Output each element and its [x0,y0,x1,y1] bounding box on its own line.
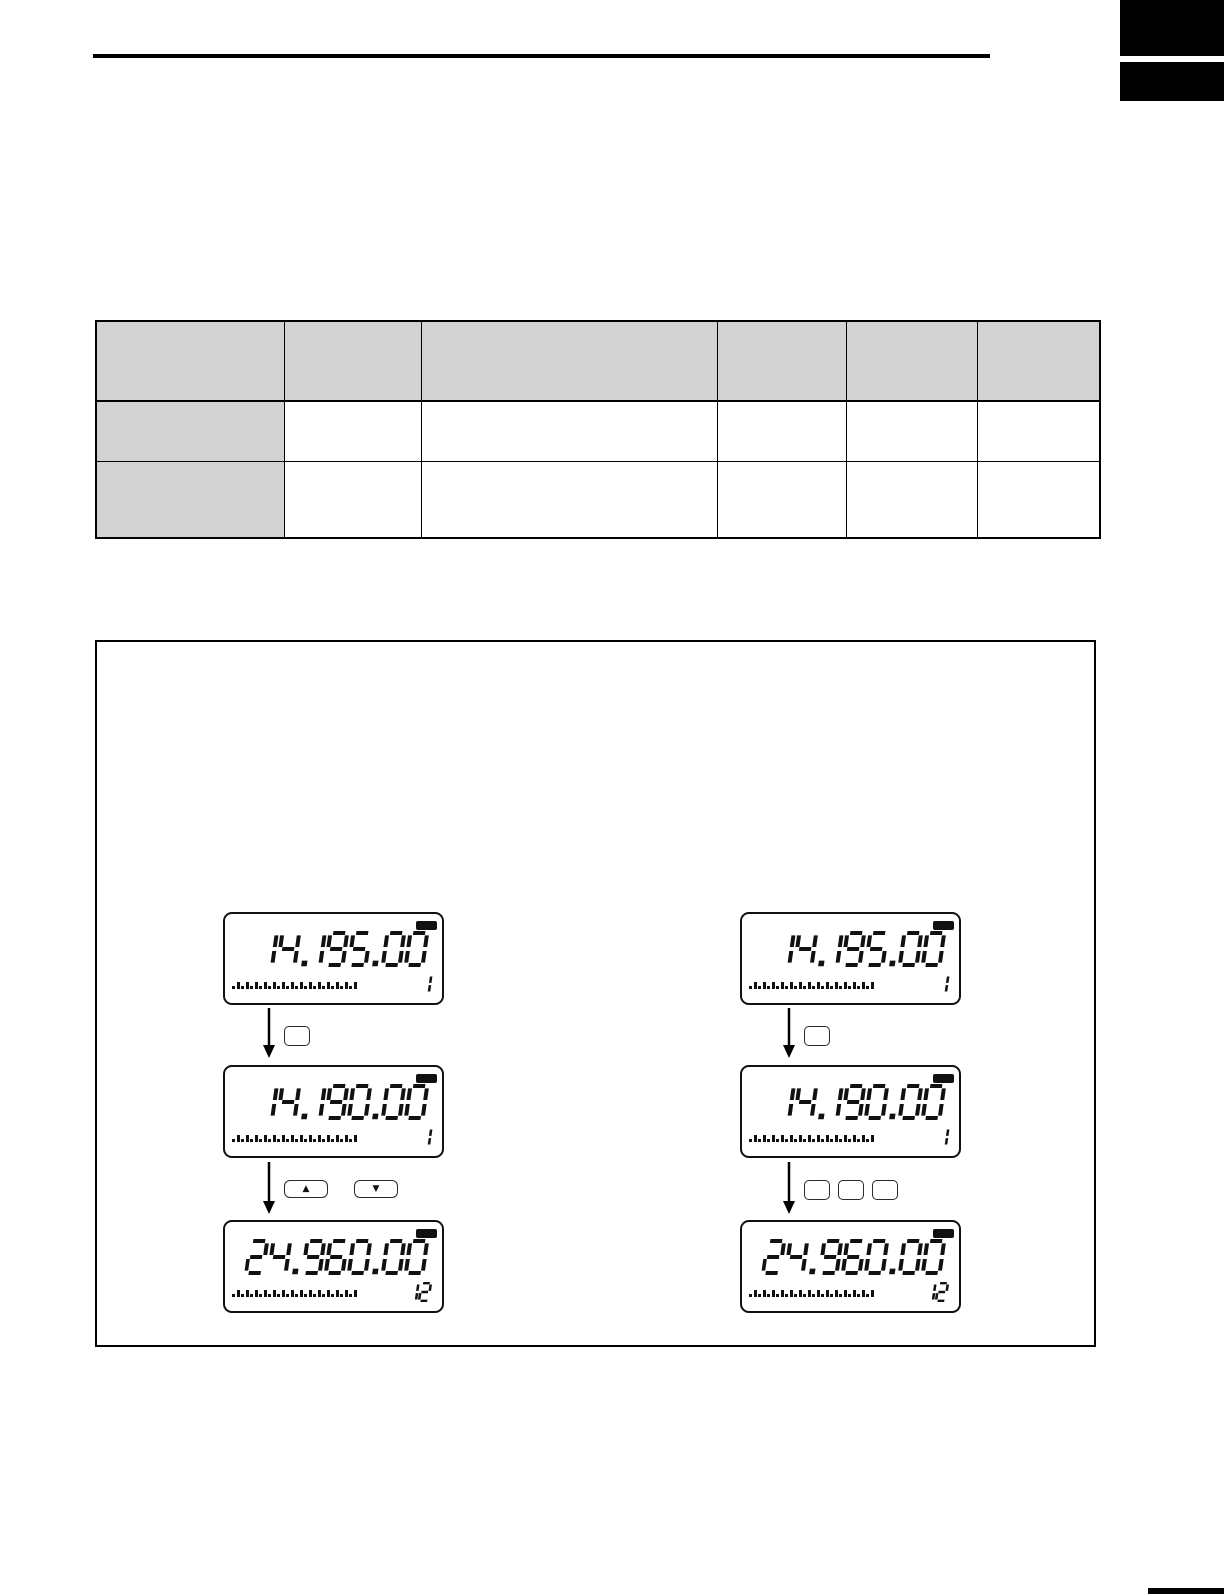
memory-channel-number [927,1282,951,1302]
lcd-display-left-3 [223,1220,444,1313]
signal-meter-scale [749,1135,875,1142]
memory-channel-number [940,974,951,994]
lcd-display-right-3 [740,1220,961,1313]
memory-channel-number [410,1282,434,1302]
table-cell [285,461,422,538]
down-arrow-icon [781,1008,797,1058]
lcd-indicator-bar [416,1229,437,1238]
table-cell [847,401,978,461]
table-header-cell [847,321,978,401]
frequency-readout [779,931,949,967]
key-button-icon [872,1180,898,1200]
frequency-readout [779,1084,949,1120]
instruction-figure-box: ▲▼ [95,640,1096,1347]
spec-table-container [95,320,1101,539]
lcd-indicator-bar [416,921,437,930]
key-button-icon [804,1180,830,1200]
table-cell [422,401,718,461]
table-cell [847,461,978,538]
table-cell [718,401,847,461]
lcd-display-left-2 [223,1065,444,1158]
table-header-cell [285,321,422,401]
table-cell [978,461,1101,538]
memory-channel-number [423,974,434,994]
lcd-display-left-1 [223,912,444,1005]
table-header-cell [978,321,1101,401]
header-rule [93,54,990,58]
key-button-icon [284,1026,310,1046]
table-cell [285,401,422,461]
frequency-readout [262,1084,432,1120]
page-corner-mark [1148,1588,1224,1594]
table-row-header-cell [96,401,285,461]
lcd-indicator-bar [416,1074,437,1083]
chapter-tab-marker-2 [1120,62,1224,101]
table-header-cell [96,321,285,401]
memory-channel-number [423,1127,434,1147]
table-cell [978,401,1101,461]
table-cell [718,461,847,538]
lcd-indicator-bar [933,1074,954,1083]
table-cell [422,461,718,538]
table-row-header-cell [96,461,285,538]
signal-meter-scale [749,1290,875,1297]
down-arrow-icon [781,1162,797,1214]
table-header-cell [718,321,847,401]
table-header-cell [422,321,718,401]
key-button-icon [804,1026,830,1046]
key-button-icon [838,1180,864,1200]
down-arrow-icon [261,1008,277,1058]
lcd-display-right-1 [740,912,961,1005]
frequency-readout [262,931,432,967]
frequency-readout [761,1239,949,1275]
memory-channel-number [940,1127,951,1147]
signal-meter-scale [232,982,358,989]
key-button-icon: ▼ [354,1180,398,1198]
chapter-tab-marker-1 [1120,0,1224,56]
lcd-display-right-2 [740,1065,961,1158]
key-button-icon: ▲ [284,1180,328,1198]
down-arrow-icon [261,1162,277,1214]
lcd-indicator-bar [933,1229,954,1238]
lcd-indicator-bar [933,921,954,930]
key-button-glyph: ▼ [373,1185,380,1194]
signal-meter-scale [232,1135,358,1142]
spec-table [95,320,1101,539]
signal-meter-scale [749,982,875,989]
signal-meter-scale [232,1290,358,1297]
frequency-readout [244,1239,432,1275]
manual-page: ▲▼ [0,0,1224,1594]
key-button-glyph: ▲ [303,1185,310,1194]
